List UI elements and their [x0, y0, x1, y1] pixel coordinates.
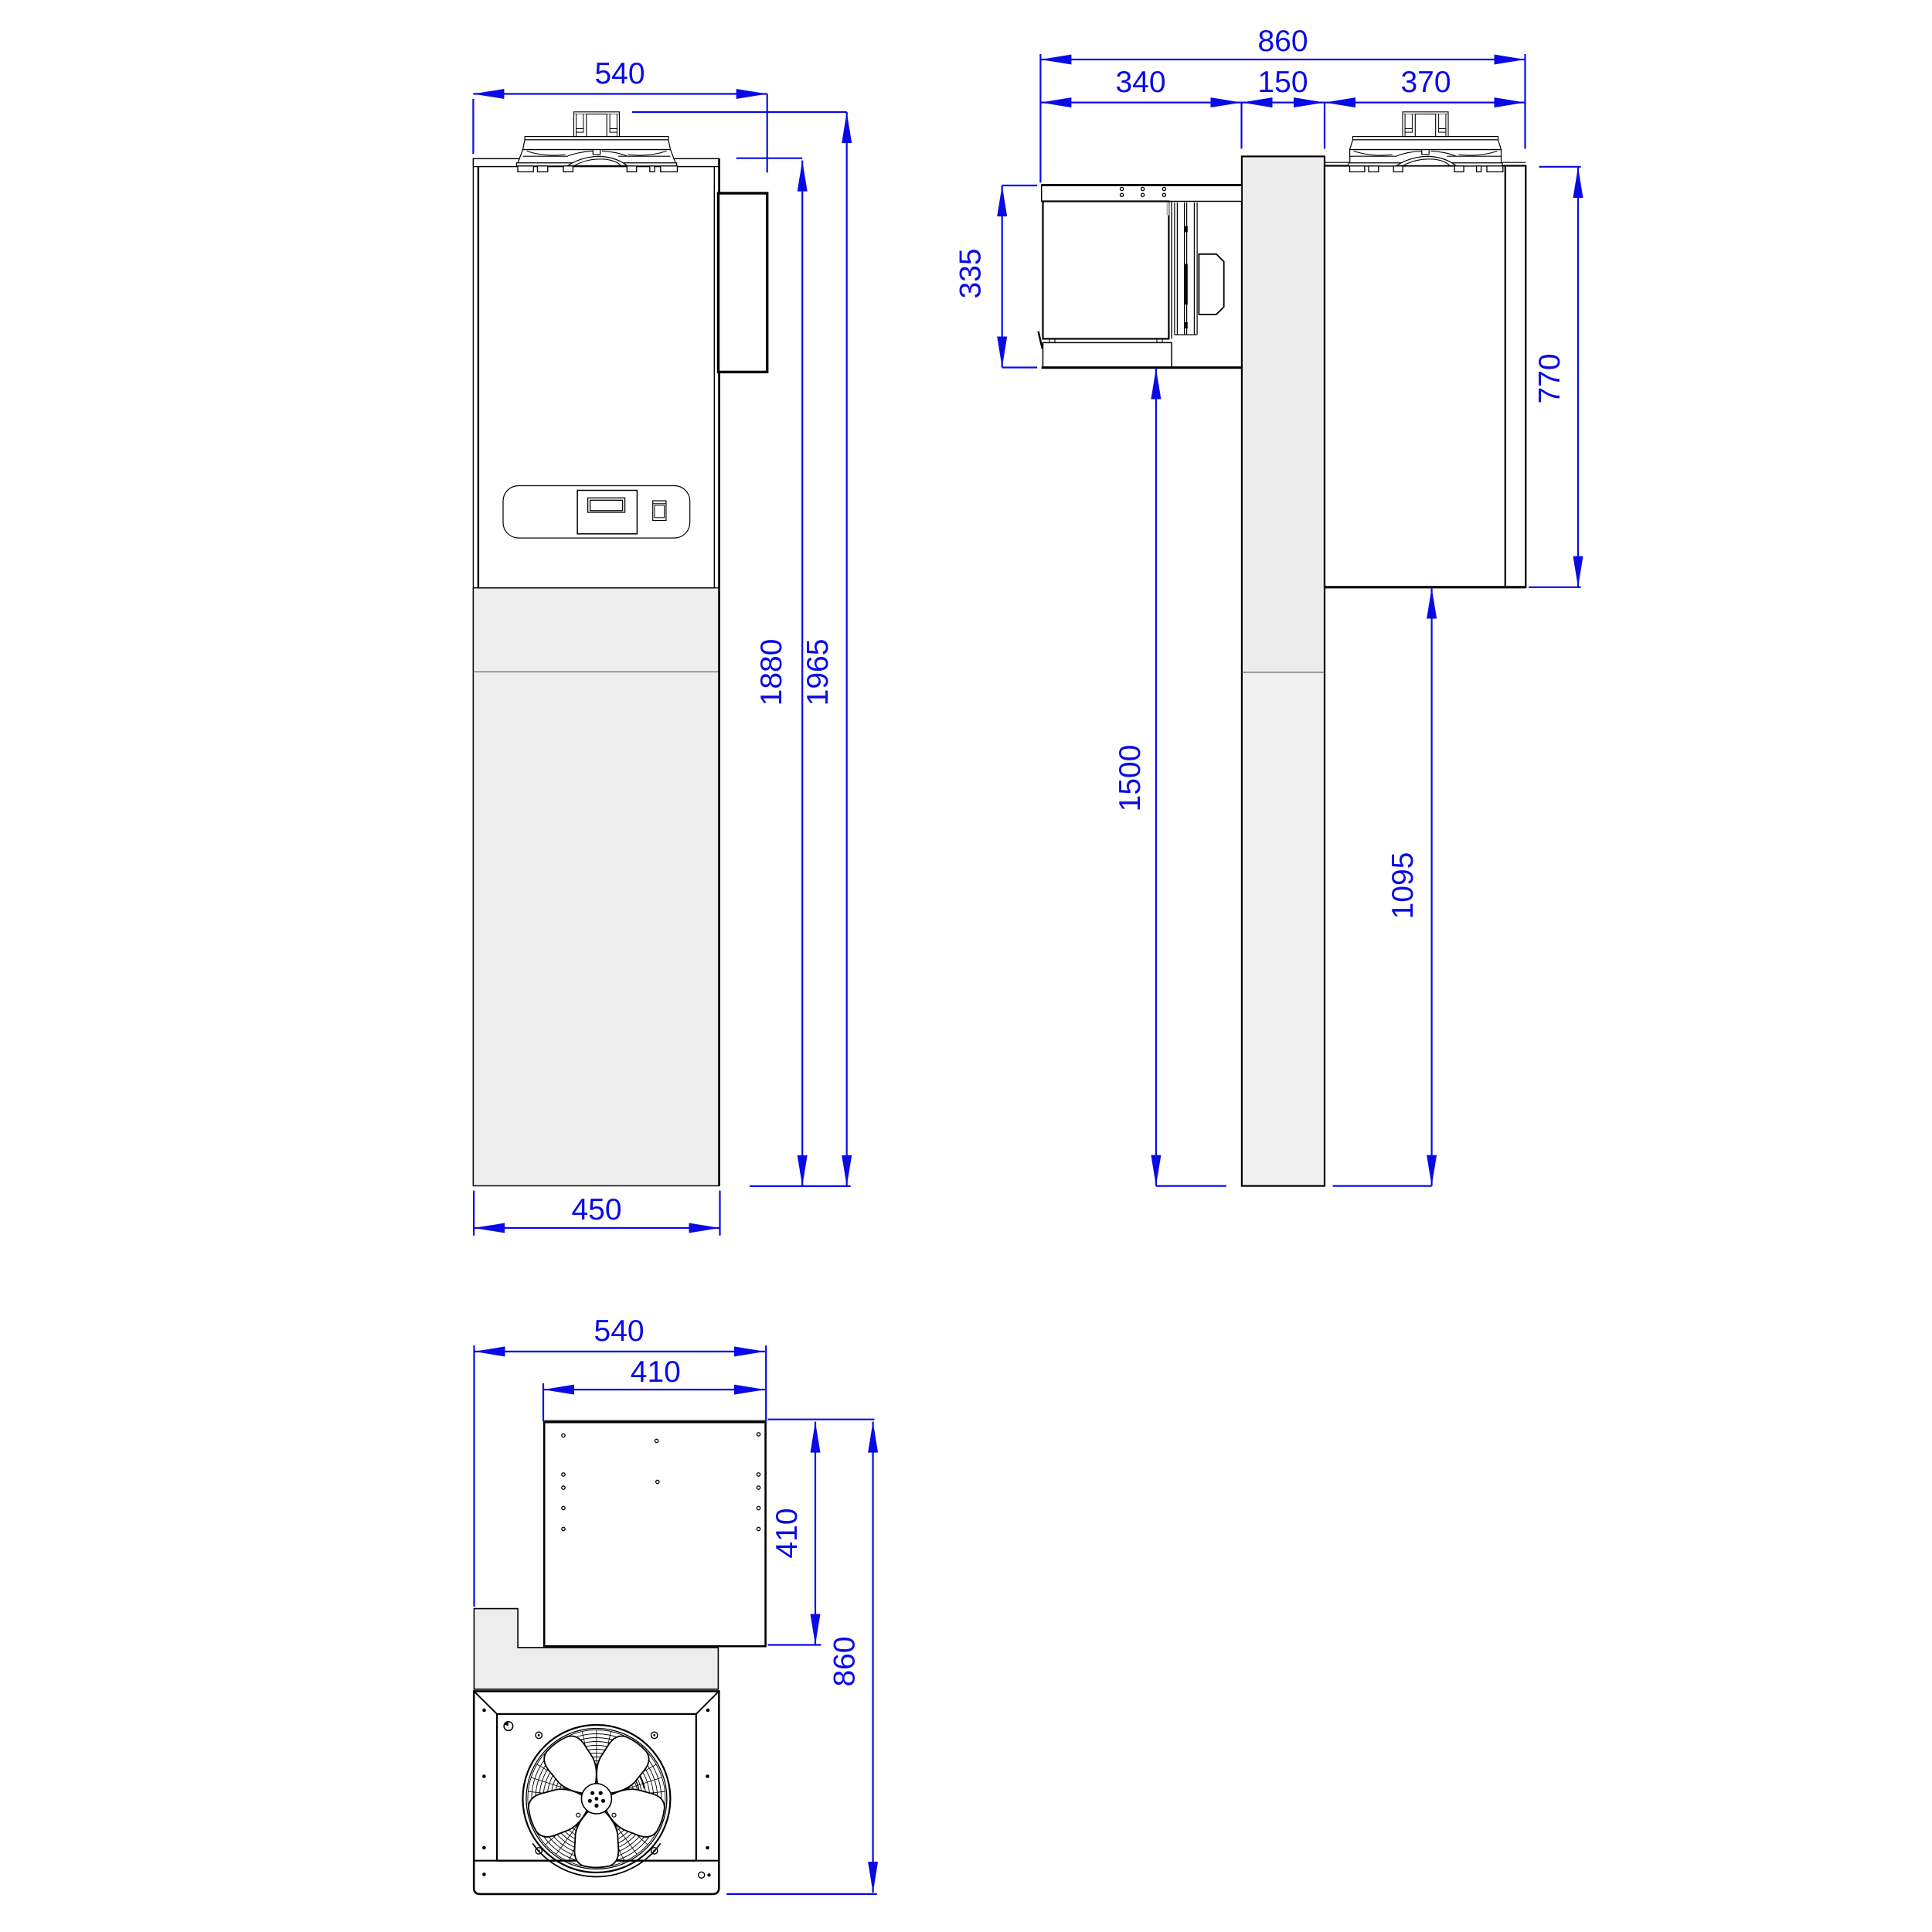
svg-text:540: 540: [594, 57, 645, 90]
svg-text:540: 540: [594, 1315, 645, 1348]
svg-text:860: 860: [828, 1636, 861, 1686]
svg-text:150: 150: [1257, 66, 1308, 99]
svg-text:340: 340: [1115, 66, 1165, 99]
svg-text:1500: 1500: [1114, 745, 1147, 812]
svg-text:1880: 1880: [755, 639, 788, 706]
svg-text:410: 410: [631, 1355, 681, 1389]
svg-text:860: 860: [1257, 25, 1308, 58]
svg-text:335: 335: [954, 248, 987, 298]
svg-text:770: 770: [1533, 353, 1566, 403]
svg-text:450: 450: [571, 1193, 621, 1226]
svg-text:1965: 1965: [801, 639, 835, 706]
svg-text:410: 410: [770, 1508, 804, 1558]
svg-text:370: 370: [1400, 66, 1451, 99]
svg-text:1095: 1095: [1386, 852, 1420, 920]
